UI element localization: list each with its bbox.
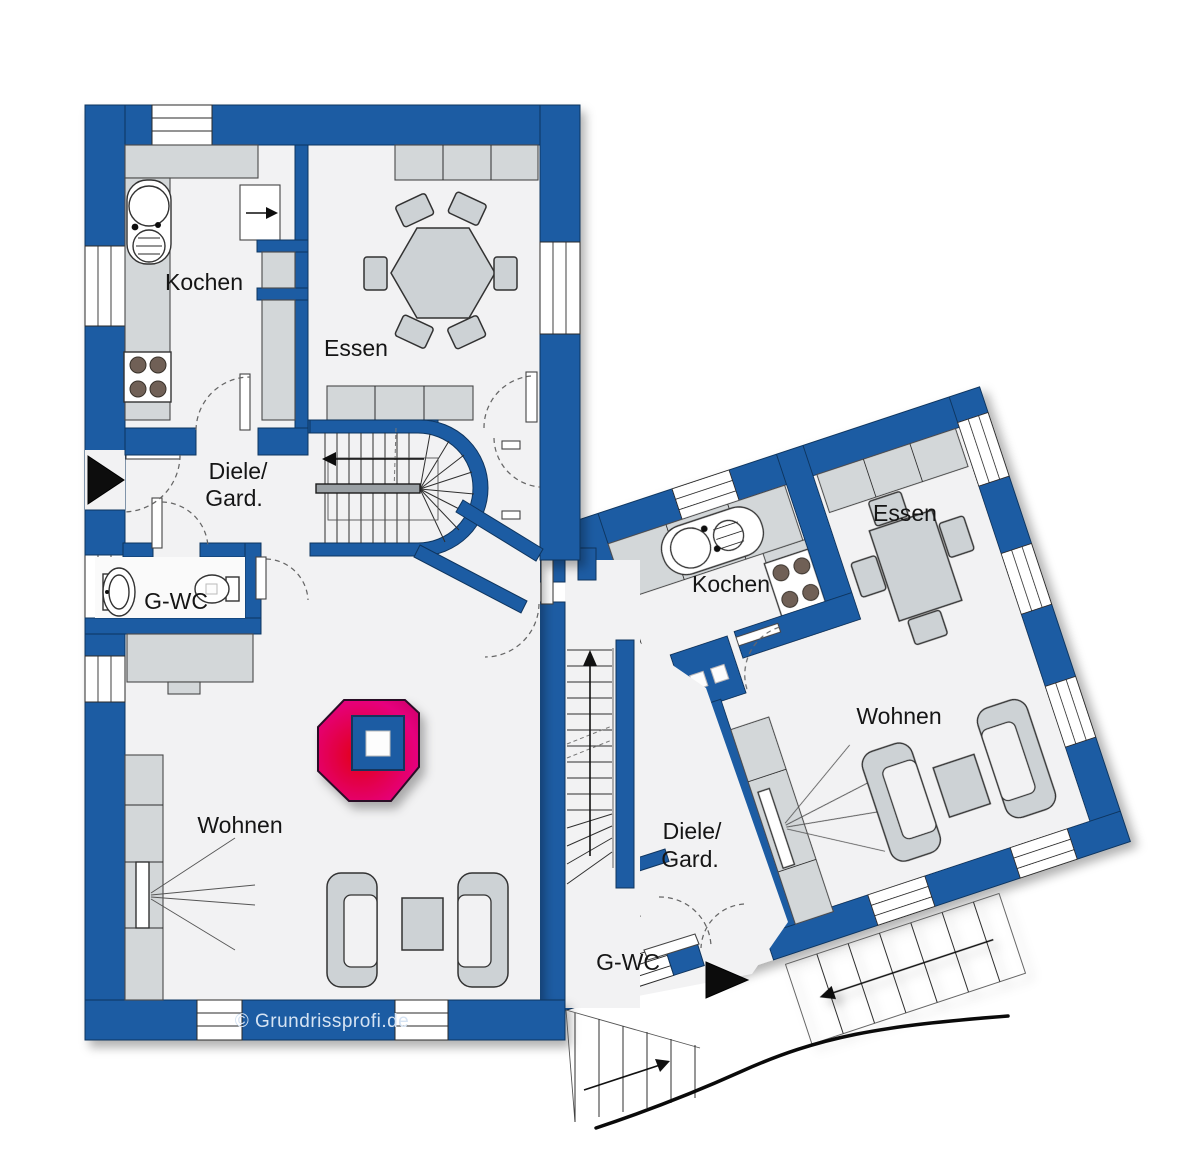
stairs-outer-curve [596, 1016, 1008, 1128]
floorplan-drawing: Kochen Essen Diele/ Gard. G-WC Wohnen Ko… [0, 0, 1200, 1170]
building-left [85, 105, 580, 1040]
desk-left [127, 634, 253, 682]
exterior-stairs-lower-flight [566, 1010, 1008, 1128]
room-label-living-right: Wohnen [856, 703, 941, 729]
room-label-kitchen-left: Kochen [165, 269, 243, 295]
floorplan-canvas: Kochen Essen Diele/ Gard. G-WC Wohnen Ko… [0, 0, 1200, 1170]
desk-chair [168, 682, 200, 694]
door-leaf [526, 372, 537, 422]
room-label-hall-left-line2: Gard. [205, 485, 263, 511]
door-leaf [256, 557, 266, 599]
chair [494, 257, 517, 290]
room-label-living-left: Wohnen [197, 812, 282, 838]
door-leaf [240, 374, 250, 430]
room-label-dining-left: Essen [324, 335, 388, 361]
room-label-hall-left-line1: Diele/ [209, 458, 268, 484]
door-leaf [541, 554, 553, 604]
stair-direction-arrow [817, 986, 836, 1004]
room-label-dining-right: Essen [873, 500, 937, 526]
room-label-hall-right-line2: Gard. [661, 846, 719, 872]
washbasin-left [103, 568, 135, 616]
kitchen-counter-left [125, 145, 258, 178]
chair [364, 257, 387, 290]
sideboard-left-top [395, 145, 538, 180]
room-label-hall-right-line1: Diele/ [663, 818, 722, 844]
sideboard-left-bottom [327, 386, 473, 420]
copyright-watermark: © Grundrissprofi.de [235, 1011, 410, 1032]
stair-railing [316, 484, 420, 493]
room-label-wc-right: G-WC [596, 949, 660, 975]
door-leaf [502, 511, 520, 519]
wall-connector-east [616, 640, 634, 888]
tv-left [136, 862, 149, 928]
logo-grundrissprofi [318, 700, 419, 801]
coffee-table [402, 898, 443, 950]
door-leaf [502, 441, 520, 449]
door-leaf [152, 498, 162, 548]
room-label-kitchen-right: Kochen [692, 571, 770, 597]
room-label-wc-left: G-WC [144, 588, 208, 614]
